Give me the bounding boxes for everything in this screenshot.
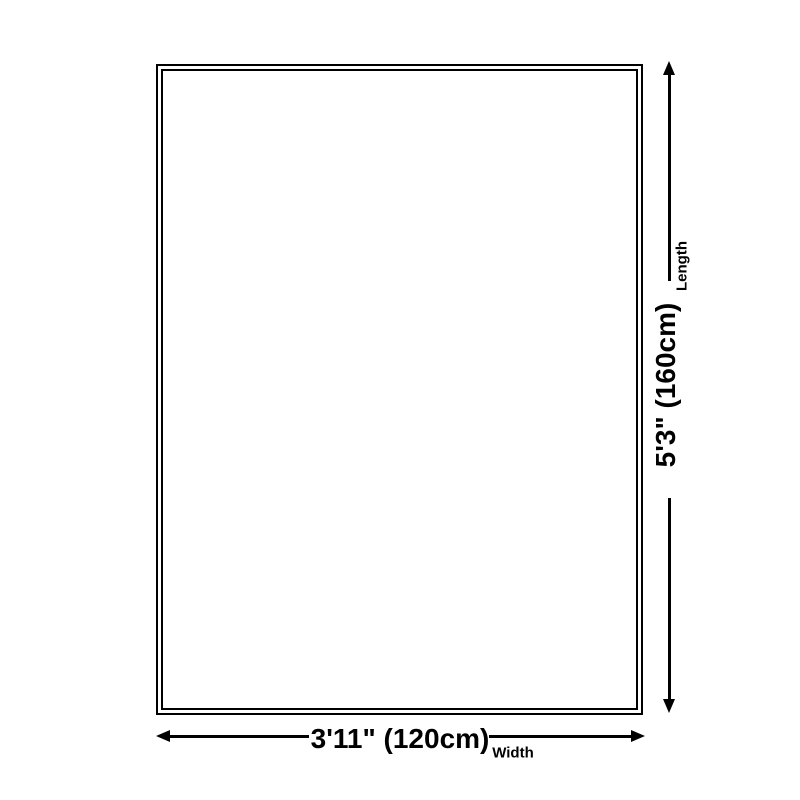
rug-outline (156, 64, 643, 715)
length-arrow-line-bottom (668, 498, 671, 700)
width-arrow-line-right (489, 735, 633, 738)
width-axis-label: Width (492, 746, 534, 761)
rug-dimension-diagram: Length 5'3" (160cm) 3'11" (120cm) Width (0, 0, 800, 800)
width-arrow-line-left (168, 735, 309, 738)
length-axis-label: Length (675, 241, 690, 291)
length-value: 5'3" (160cm) (652, 303, 680, 468)
width-arrow-right-icon (631, 730, 645, 742)
width-value: 3'11" (120cm) (311, 725, 490, 753)
rug-inner-border (161, 69, 638, 710)
length-arrow-down-icon (663, 699, 675, 713)
length-arrow-line-top (668, 73, 671, 281)
